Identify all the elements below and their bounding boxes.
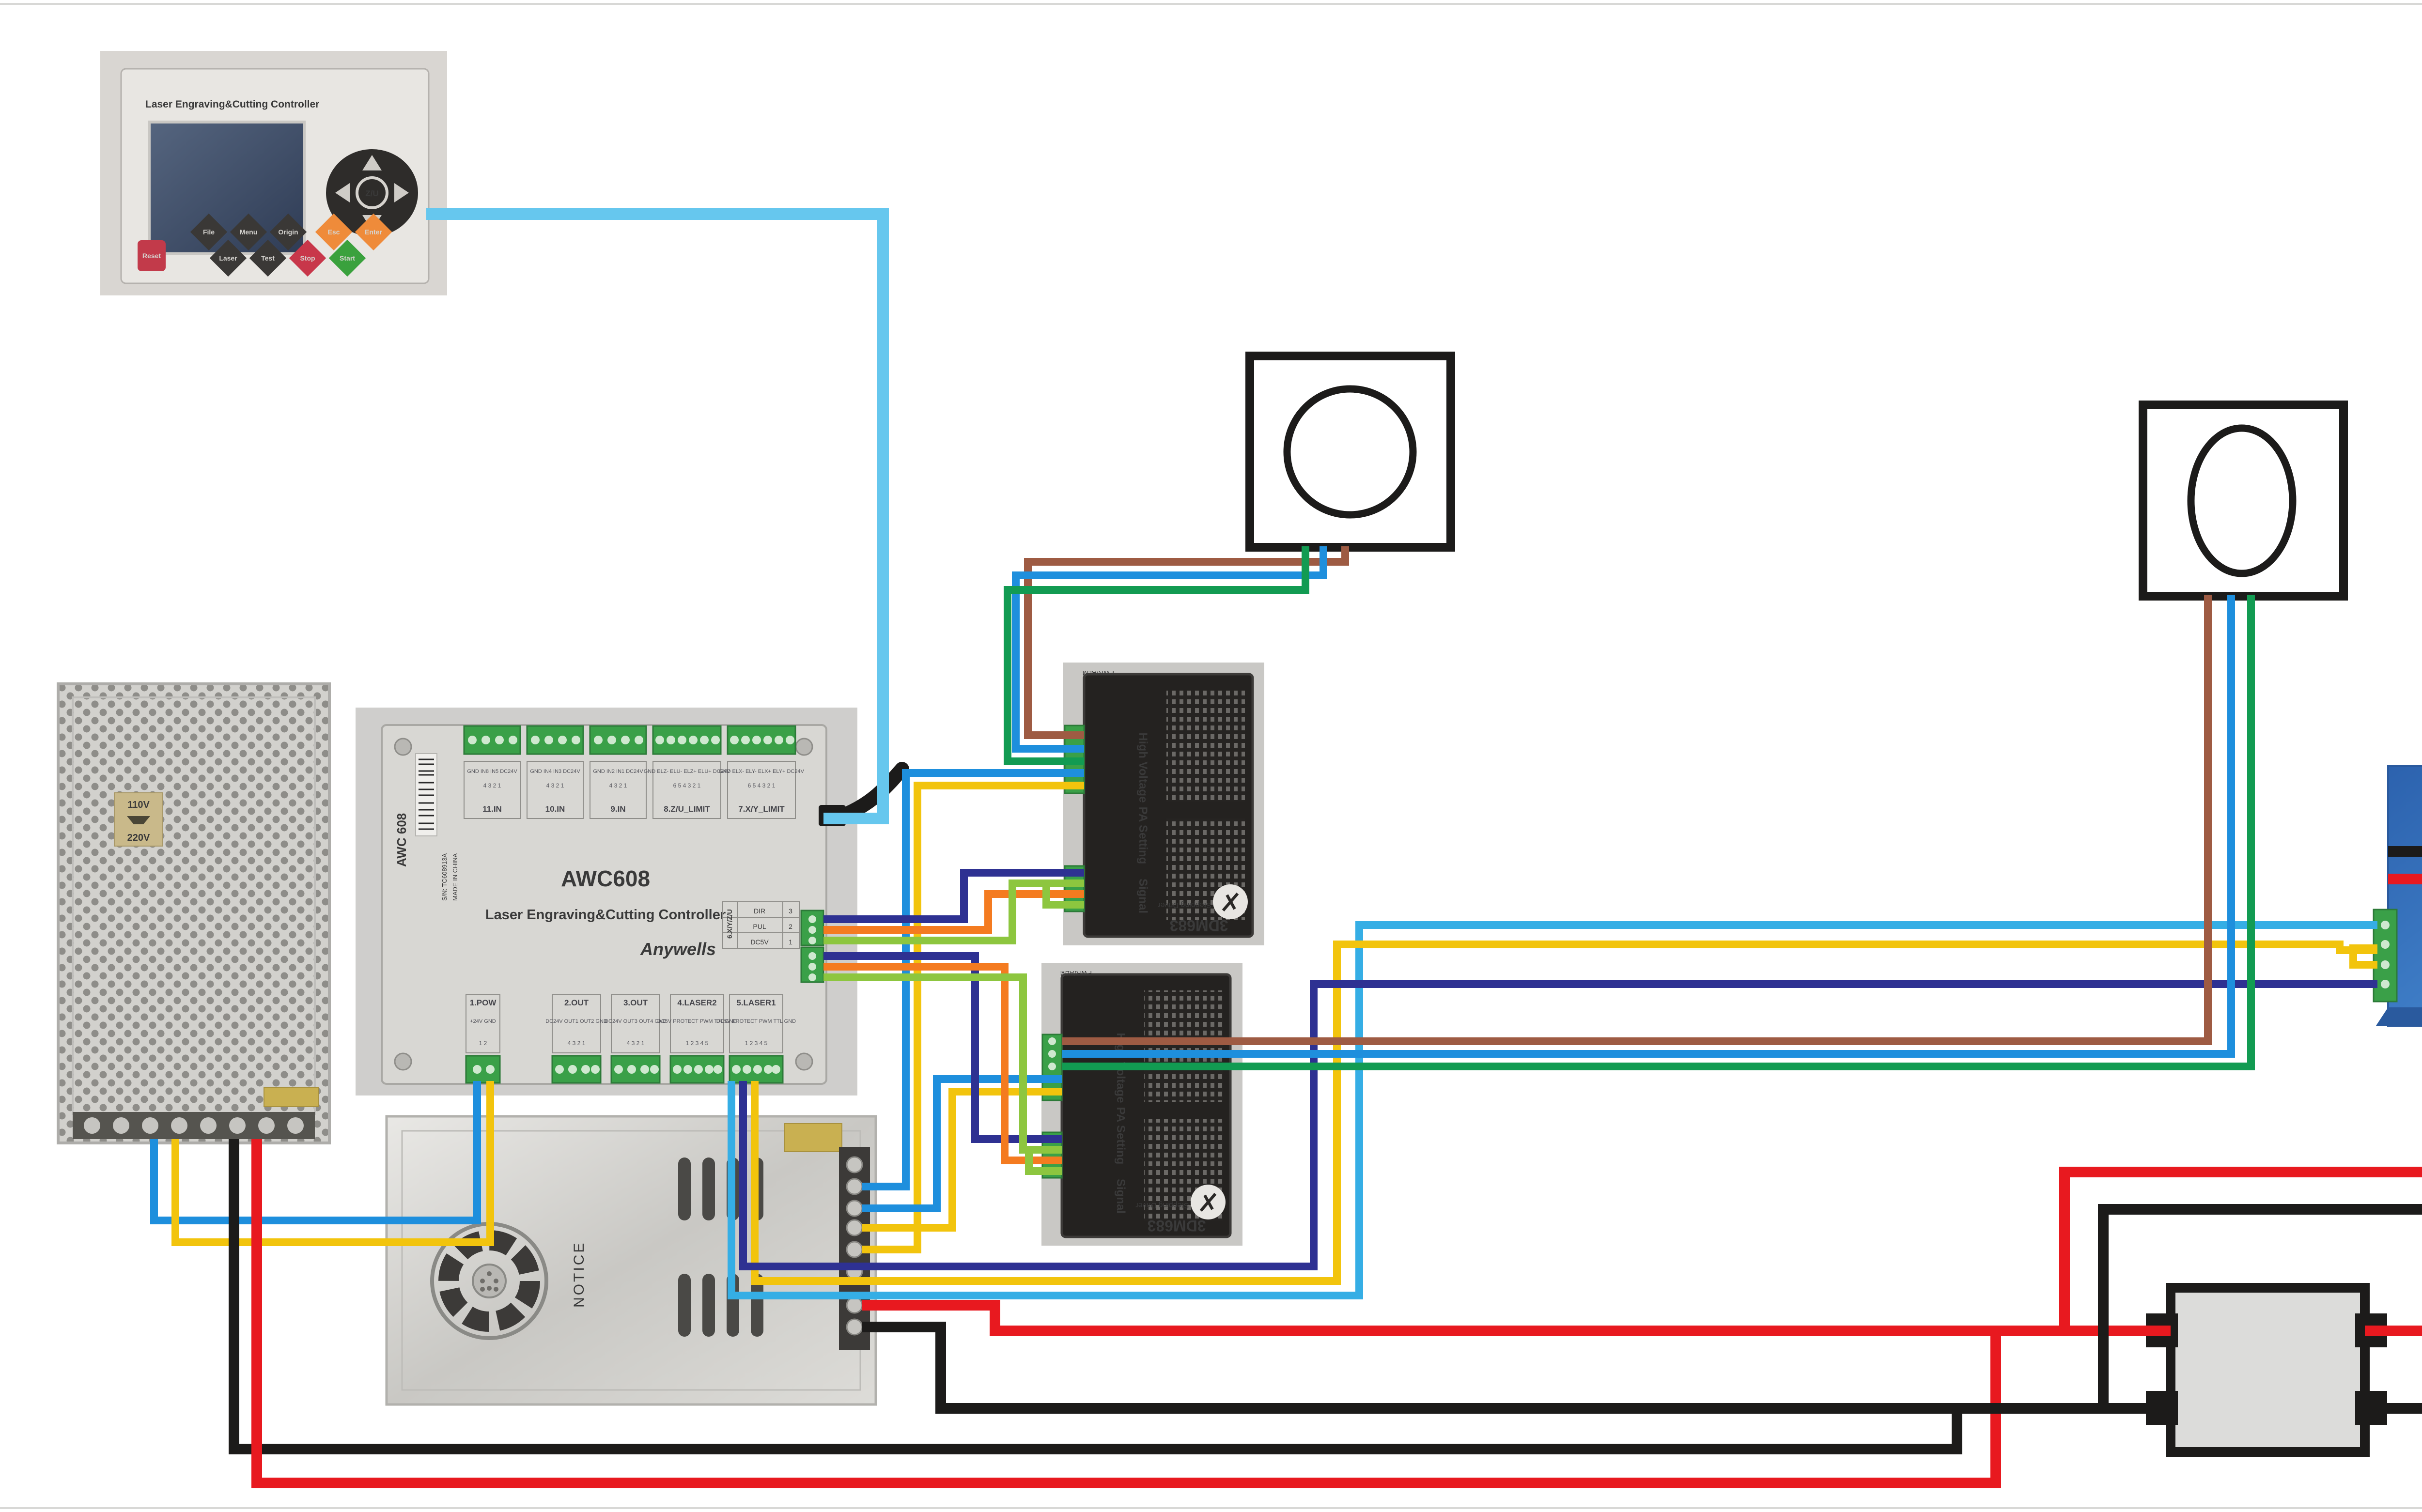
label-out2: 2.OUT bbox=[564, 998, 589, 1007]
driver1-pwr-label: PWR/ALM bbox=[1083, 669, 1114, 677]
nums-laser2: 1 2 3 4 5 bbox=[686, 1040, 709, 1047]
laser-psu-base-flange bbox=[2376, 1007, 2422, 1026]
motor1-body bbox=[1250, 356, 1451, 547]
wire-mains-red-main bbox=[862, 1305, 2171, 1331]
nums-out3: 4 3 2 1 bbox=[627, 1040, 645, 1047]
wire-laser-ctrl-yellow bbox=[755, 944, 2377, 1281]
driver1-hv-label: High Voltage bbox=[1136, 733, 1149, 803]
driver2-pa-label: PA Setting bbox=[1114, 1107, 1127, 1165]
nums-10in: 4 3 2 1 bbox=[546, 782, 564, 789]
driver1-model-label: 3DM683 bbox=[1170, 917, 1228, 934]
left-psu-case bbox=[58, 684, 329, 1143]
page-border-top bbox=[0, 3, 2422, 5]
pins-11in: GND IN8 IN5 DC24V bbox=[467, 769, 517, 774]
pins-out2: DC24V OUT1 OUT2 GND bbox=[545, 1018, 607, 1024]
stepper-motor-1-symbol bbox=[1250, 356, 1451, 547]
label-laser2: 4.LASER2 bbox=[677, 998, 716, 1007]
page-border-bottom bbox=[0, 1507, 2422, 1509]
pins-9in: GND IN2 IN1 DC24V bbox=[593, 769, 643, 774]
driver1-signal-label: Signal bbox=[1136, 879, 1149, 913]
nums-9in: 4 3 2 1 bbox=[609, 782, 627, 789]
nums-laser1: 1 2 3 4 5 bbox=[745, 1040, 768, 1047]
pins-pow: +24V GND bbox=[470, 1018, 496, 1024]
terminal-pow bbox=[466, 1056, 500, 1083]
laser-power-supply-photo bbox=[2374, 766, 2422, 1026]
label-laser1: 5.LASER1 bbox=[736, 998, 776, 1007]
nums-pow: 1 2 bbox=[479, 1040, 487, 1047]
silver-power-supply-photo: NOTICE bbox=[387, 1116, 876, 1404]
enter-button-label: Enter bbox=[365, 228, 382, 236]
label-xy-limit: 7.X/Y_LIMIT bbox=[738, 804, 785, 814]
num-dc5v: 1 bbox=[789, 938, 792, 946]
awc-made-in-label: MADE IN CHINA bbox=[451, 853, 459, 901]
label-pul: PUL bbox=[753, 923, 766, 930]
left-power-supply-photo: 110V 220V bbox=[58, 684, 329, 1143]
silver-psu-case bbox=[387, 1116, 876, 1404]
num-dir: 3 bbox=[789, 907, 792, 915]
label-dir: DIR bbox=[754, 907, 765, 915]
silver-psu-terminal-screws bbox=[847, 1157, 862, 1335]
label-zu-limit: 8.Z/U_LIMIT bbox=[664, 804, 710, 814]
nums-11in: 4 3 2 1 bbox=[483, 782, 501, 789]
laser-button-label: Laser bbox=[219, 254, 237, 262]
esc-button-label: Esc bbox=[328, 228, 340, 236]
nums-out2: 4 3 2 1 bbox=[568, 1040, 586, 1047]
num-pul: 2 bbox=[789, 923, 792, 930]
control-panel-photo: Laser Engraving&Cutting Controller Z/U R… bbox=[100, 51, 447, 295]
label-xyzu: 6.X/Y/Z/U bbox=[726, 909, 733, 939]
nums-xy: 6 5 4 3 2 1 bbox=[748, 782, 776, 789]
menu-button-label: Menu bbox=[240, 228, 258, 236]
awc-model-title: AWC608 bbox=[561, 866, 650, 891]
pins-laser1: DC5V PROTECT PWM TTL GND bbox=[716, 1018, 796, 1024]
nums-zu: 6 5 4 3 2 1 bbox=[673, 782, 701, 789]
pins-10in: GND IN4 IN3 DC24V bbox=[530, 769, 580, 774]
laser-machine-wiring-diagram: Laser Engraving&Cutting Controller Z/U R… bbox=[0, 0, 2422, 1512]
label-10in: 10.IN bbox=[545, 804, 565, 814]
awc-serial-label: S/N: TC608913A bbox=[441, 853, 448, 901]
label-11in: 11.IN bbox=[482, 804, 502, 814]
driver2-dip-area-1 bbox=[1144, 990, 1223, 1102]
awc-board-case bbox=[382, 725, 826, 1084]
voltage-110-label: 110V bbox=[127, 800, 150, 810]
wire-mains-black-main bbox=[862, 1327, 2171, 1408]
test-button-label: Test bbox=[261, 254, 275, 262]
stop-button-label: Stop bbox=[300, 254, 315, 262]
stepper-motor-2-symbol bbox=[2143, 405, 2344, 596]
driver1-pa-label: PA Setting bbox=[1136, 807, 1149, 864]
stepper-driver-1-photo: High Voltage PA Setting Signal 3DM683 Di… bbox=[1063, 663, 1264, 945]
label-dc5v: DC5V bbox=[750, 938, 769, 946]
left-psu-gold-label bbox=[264, 1087, 318, 1107]
awc-side-model-label: AWC 608 bbox=[394, 813, 409, 867]
silver-psu-gold-label bbox=[785, 1124, 842, 1152]
wire-laser-ctrl-navy bbox=[743, 984, 2377, 1266]
voltage-220-label: 220V bbox=[127, 833, 150, 843]
awc-brand: Anywells bbox=[640, 939, 716, 959]
origin-button-label: Origin bbox=[278, 228, 298, 236]
zu-button-label: Z/U bbox=[365, 189, 378, 198]
motor2-body bbox=[2143, 405, 2344, 596]
left-psu-terminal-strip bbox=[73, 1112, 315, 1139]
silver-psu-notice-label: NOTICE bbox=[571, 1241, 587, 1308]
label-9in: 9.IN bbox=[610, 804, 625, 814]
pins-zu-limit: GND ELZ- ELU- ELZ+ ELU+ DC24V bbox=[644, 769, 730, 774]
driver2-signal-label: Signal bbox=[1114, 1179, 1127, 1214]
driver2-model-label: 3DM683 bbox=[1148, 1217, 1206, 1234]
fan-hub bbox=[473, 1265, 506, 1297]
driver2-pwr-label: PWR/ALM bbox=[1060, 970, 1092, 977]
panel-title: Laser Engraving&Cutting Controller bbox=[145, 99, 319, 110]
awc608-controller-photo: AWC 608 S/N: TC608913A MADE IN CHINA bbox=[356, 708, 902, 1095]
driver1-dip-area-1 bbox=[1166, 690, 1245, 802]
reset-button-label: Reset bbox=[142, 252, 161, 260]
file-button-label: File bbox=[203, 228, 215, 236]
label-pow: 1.POW bbox=[470, 998, 497, 1007]
voltage-selector-label: 110V 220V bbox=[114, 793, 163, 846]
power-filter-box bbox=[2146, 1288, 2387, 1452]
pins-xy-limit: GND ELX- ELY- ELX+ ELY+ DC24V bbox=[719, 769, 805, 774]
start-button-label: Start bbox=[340, 254, 355, 262]
awc-subtitle: Laser Engraving&Cutting Controller bbox=[485, 907, 726, 923]
filter-box-body bbox=[2171, 1288, 2365, 1452]
stepper-driver-2-photo: High Voltage PA Setting Signal 3DM683 Di… bbox=[1041, 963, 1242, 1246]
label-out3: 3.OUT bbox=[623, 998, 648, 1007]
